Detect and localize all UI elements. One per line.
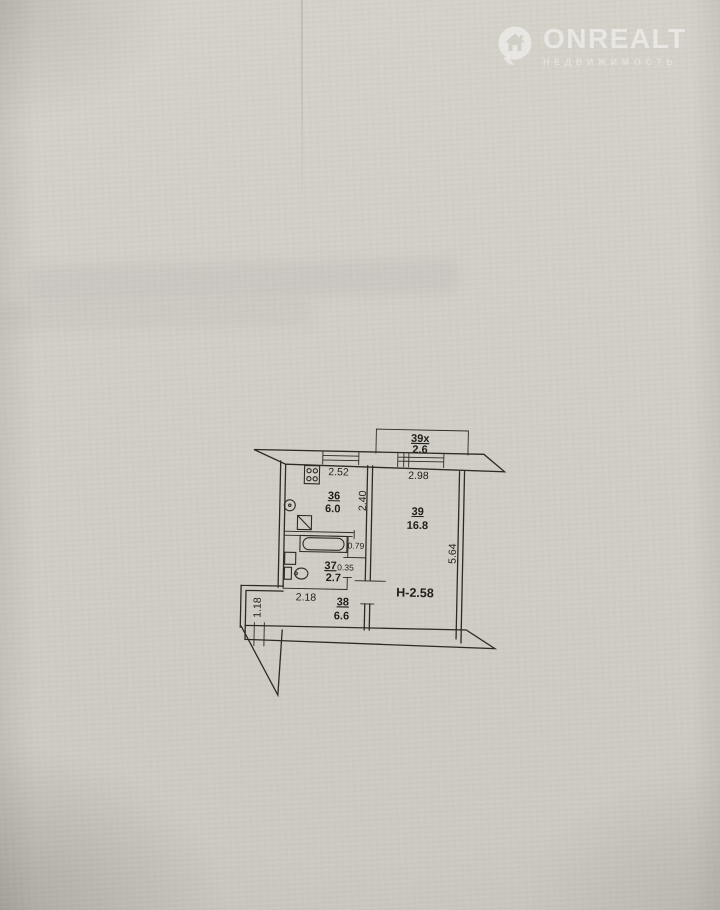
room-37-area: 2.7 [326,572,342,584]
watermark-text: ONREALT НЕДВИЖИМОСТЬ [543,24,687,67]
room-38-area: 6.6 [334,610,350,622]
dim-hall-left: 1.18 [251,597,263,618]
watermark: ONREALT НЕДВИЖИМОСТЬ [496,24,687,72]
house-pin-icon [496,24,536,72]
dim-hall-top: 2.18 [296,591,317,603]
ghost-text-bleed [0,299,310,330]
stove-icon [304,466,319,484]
dim-room-side: 5.64 [447,543,459,564]
bathtub-icon [300,535,347,552]
floor-plan: 39x 2.6 2.52 36 6.0 2.40 2.98 39 16.8 5.… [225,415,525,715]
dim-niche: 0.79 [348,540,365,550]
dim-stub: 0.35 [337,562,354,572]
room-37-number: 37 [324,560,336,572]
outer-wall-bottom [245,625,495,648]
ghost-text-bleed [28,258,459,303]
toilet-icon [284,567,308,579]
brand-name: ONREALT [543,24,687,55]
room-39-number: 39 [411,506,423,518]
kitchen-sink-icon [284,500,295,511]
ceiling-height: Н-2.58 [396,586,434,601]
washbasin-icon [285,552,296,564]
paper-crease [301,0,303,195]
chimney [520,35,523,39]
kitchen-cabinet-icon [297,515,311,529]
wall-kitchen-bath [284,529,354,538]
room-39-area: 16.8 [407,520,429,532]
wall-cut-spike [240,626,282,695]
scanned-floor-plan-page: ONREALT НЕДВИЖИМОСТЬ [0,0,720,910]
kitchen-window [323,452,359,465]
plan-drawing: 39x 2.6 2.52 36 6.0 2.40 2.98 39 16.8 5.… [239,426,506,699]
dim-kitchen-top: 2.52 [328,466,349,478]
room-38-number: 38 [337,596,349,608]
dim-room-top: 2.98 [408,470,429,482]
wall-middle [364,466,372,630]
brand-subtitle: НЕДВИЖИМОСТЬ [543,57,687,67]
room-39x-area: 2.6 [412,444,428,456]
room-36-area: 6.0 [325,503,341,515]
dim-kitchen-side: 2.40 [357,490,369,511]
door-opening-ticks [355,581,385,605]
outer-wall-top [254,450,505,472]
room-36-number: 36 [328,490,340,502]
